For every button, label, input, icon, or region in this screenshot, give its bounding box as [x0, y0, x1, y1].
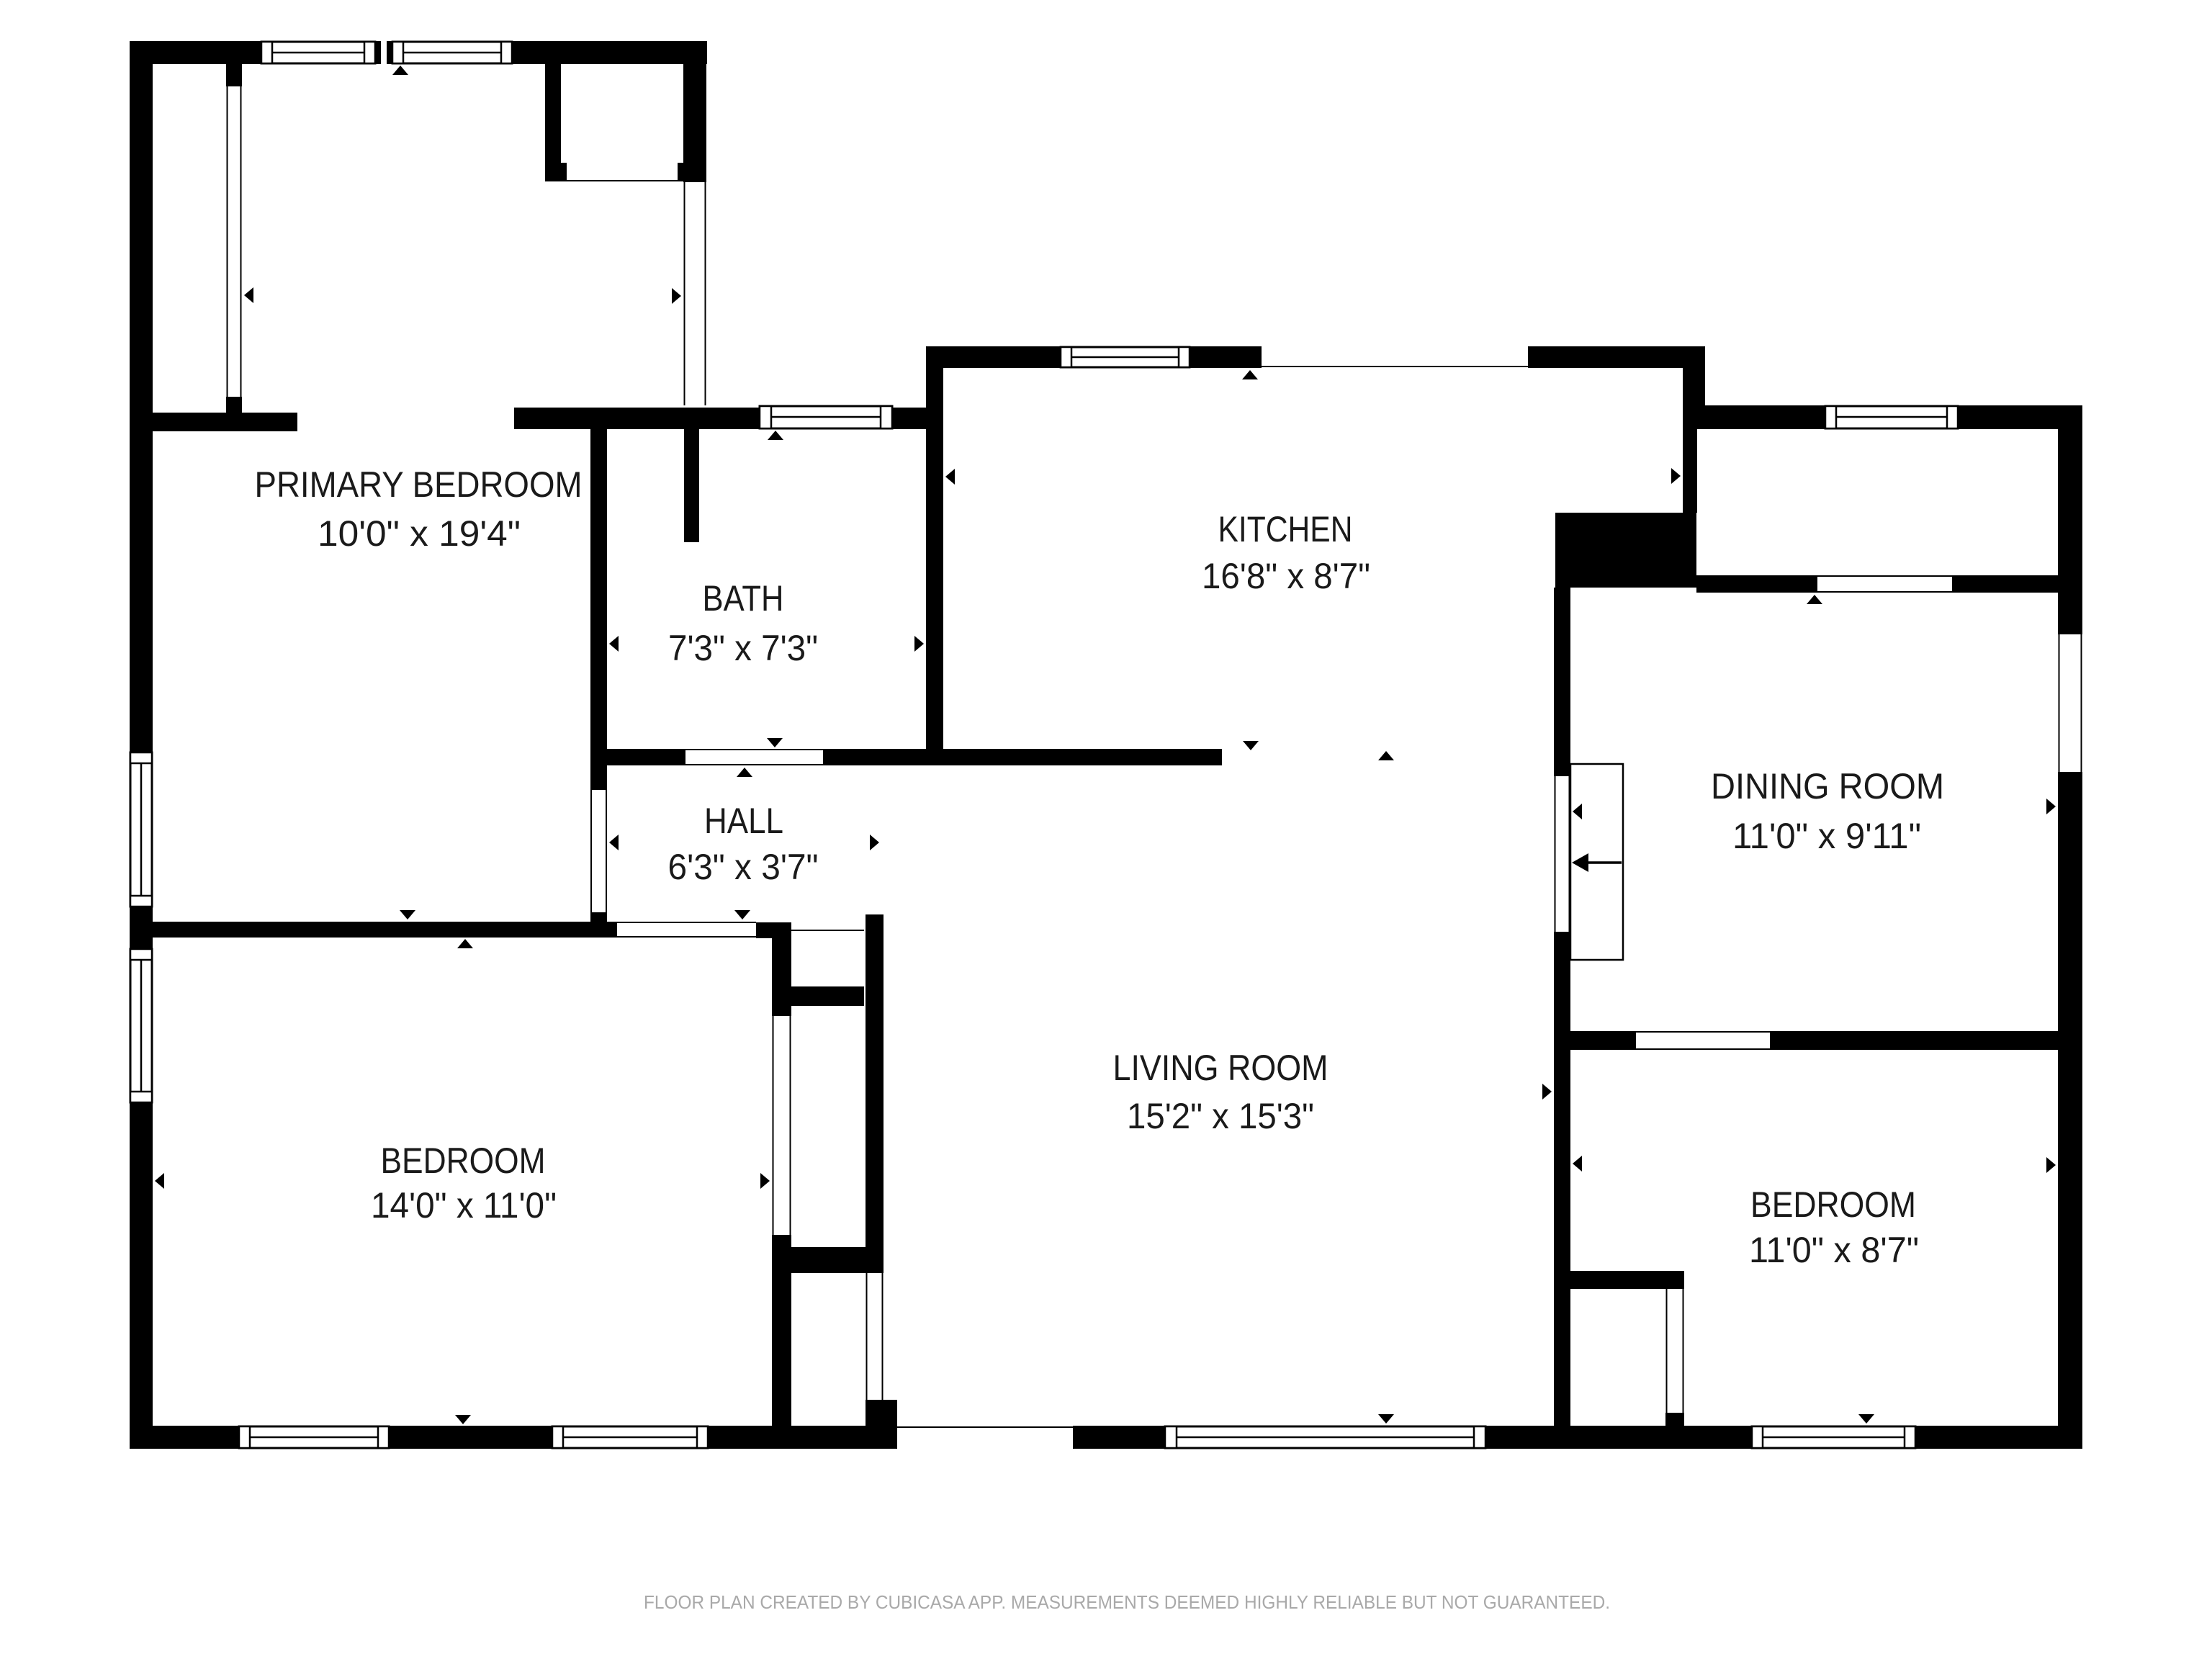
svg-text:10'0" x 19'4": 10'0" x 19'4" — [318, 513, 521, 554]
svg-text:KITCHEN: KITCHEN — [1218, 509, 1353, 549]
svg-text:14'0" x 11'0": 14'0" x 11'0" — [371, 1185, 557, 1226]
svg-text:7'3" x 7'3": 7'3" x 7'3" — [668, 628, 818, 668]
svg-text:BATH: BATH — [703, 578, 784, 619]
svg-text:DINING ROOM: DINING ROOM — [1711, 766, 1944, 806]
svg-text:11'0" x 8'7": 11'0" x 8'7" — [1749, 1230, 1919, 1270]
svg-text:PRIMARY BEDROOM: PRIMARY BEDROOM — [255, 464, 583, 505]
svg-text:15'2" x 15'3": 15'2" x 15'3" — [1127, 1096, 1314, 1136]
svg-text:BEDROOM: BEDROOM — [1750, 1184, 1916, 1225]
svg-text:HALL: HALL — [704, 801, 783, 841]
svg-text:FLOOR PLAN CREATED BY CUBICASA: FLOOR PLAN CREATED BY CUBICASA APP. MEAS… — [644, 1591, 1610, 1613]
svg-text:11'0" x 9'11": 11'0" x 9'11" — [1732, 816, 1921, 856]
svg-text:LIVING ROOM: LIVING ROOM — [1113, 1048, 1328, 1088]
svg-text:6'3" x 3'7": 6'3" x 3'7" — [668, 847, 819, 887]
svg-text:16'8" x 8'7": 16'8" x 8'7" — [1202, 556, 1370, 596]
svg-text:BEDROOM: BEDROOM — [381, 1141, 546, 1181]
